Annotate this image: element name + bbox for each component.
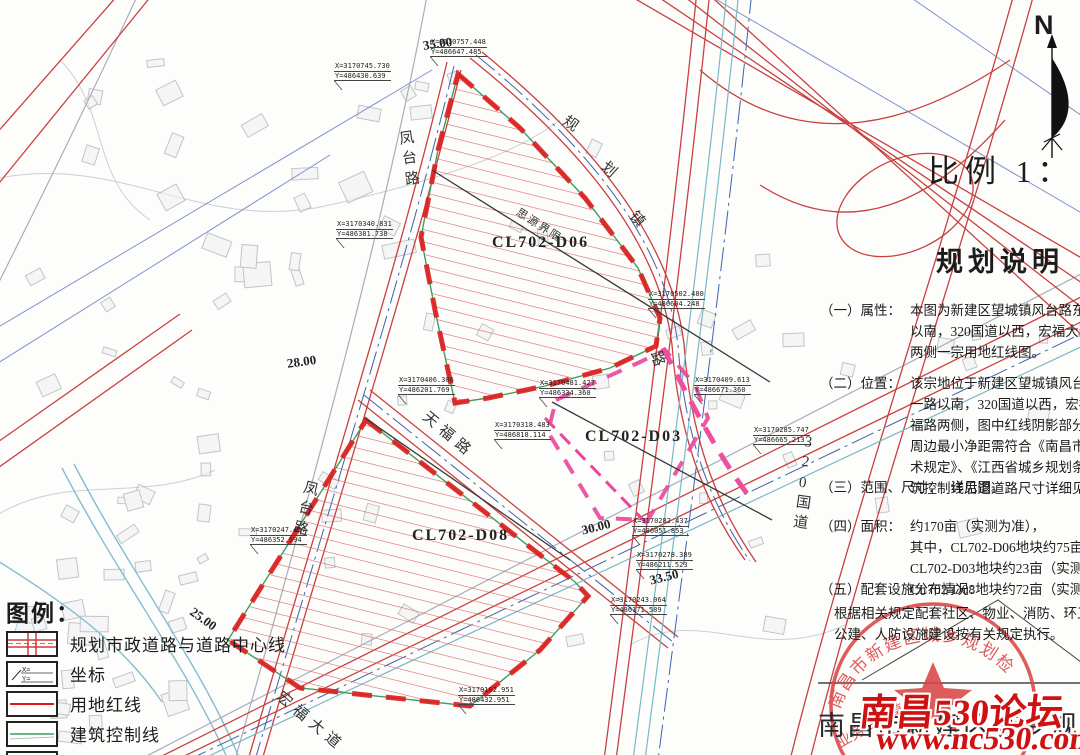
note-section-label: （一）属性： [820, 300, 901, 363]
green-line-symbol-icon [6, 721, 58, 747]
coordinate-label: X=3170745.730Y=486430.639 [334, 62, 391, 90]
legend-item: X=Y=坐标 [6, 662, 286, 685]
note-line: 公建、人防设施建设按有关规定执行。 [834, 624, 1080, 645]
scale-text: 比例 1： [928, 146, 1074, 191]
coordinate-label: X=3170243.064Y=486171.589 [610, 596, 667, 624]
note-line: 两侧一宗用地红线图。 [910, 342, 1080, 363]
note-section-label: （五）配套设施分布情况： [820, 579, 1080, 600]
coordinate-symbol-icon: X=Y= [6, 661, 58, 687]
coordinate-label: X=3170318.483Y=486818.114 [494, 421, 551, 449]
elevation-symbol-icon: XX.XX [6, 751, 58, 755]
coordinate-label: X=3170278.389Y=486211.523 [636, 551, 693, 579]
legend-item-label: 规划市政道路与道路中心线 [70, 631, 286, 656]
scale-label: 比例 [928, 154, 1002, 189]
coordinate-label: X=3170757.448Y=486647.485 [430, 38, 487, 66]
coordinate-label: X=3170282.437Y=486051.853 [632, 517, 689, 545]
legend-item: 建筑控制线 [6, 722, 286, 745]
parcel-label-cl702-d08: CL702-D08 [412, 527, 509, 545]
scale-value: 1： [1016, 154, 1075, 189]
coordinate-label: X=3170340.831Y=486381.738 [336, 220, 393, 248]
legend-item: 用地红线 [6, 692, 286, 715]
note-line: 本图为新建区望城镇风台路东侧， [910, 300, 1080, 321]
planning-map-sheet: 南昌市新建区城乡规划检 业务专用章 N 比例 1： 规划说明 （一）属性：本图为… [0, 0, 1080, 755]
notes-heading: 规划说明 [936, 240, 1064, 279]
parcel-label-cl702-d06: CL702-D06 [492, 234, 589, 252]
note-line: 根据相关规定配套社区、物业、消防、环卫、 [834, 603, 1080, 624]
note-line: 约170亩（实测为准）， [910, 516, 1080, 537]
note-section-label: （三）范围、尺寸： [820, 477, 942, 498]
note-line: 详见图。 [951, 477, 1005, 498]
coordinate-label: X=3170481.427Y=486334.360 [539, 379, 596, 407]
coordinate-label: X=3170409.613Y=486671.360 [694, 376, 751, 404]
note-line: 以南，320国道以西，宏福大道以北 [910, 321, 1080, 342]
legend-item-label: 坐标 [70, 661, 106, 686]
red-line-symbol-icon [6, 691, 58, 717]
note-line: 周边最小净距需符合《南昌市城市 [910, 436, 1080, 457]
road-symbol-icon [6, 631, 58, 657]
coordinate-label: X=3170247.457Y=486352.594 [250, 526, 307, 554]
coordinate-label: X=3170502.480Y=486604.248 [648, 290, 705, 318]
note-line: 一路以南，320国道以西，宏福大道 [910, 394, 1080, 415]
legend-item: 规划市政道路与道路中心线 [6, 632, 286, 655]
legend-title: 图例： [6, 594, 286, 628]
legend-item-label: 建筑控制线 [70, 721, 160, 746]
legend: 图例： 规划市政道路与道路中心线X=Y=坐标用地红线建筑控制线XX.XX道路设计… [6, 594, 286, 755]
coordinate-label: X=3170406.306Y=486201.769 [398, 376, 455, 404]
north-label: N [1034, 10, 1054, 41]
north-arrow-icon [1042, 34, 1069, 158]
note-line: 术规定》、《江西省城乡规划条例 [910, 457, 1080, 478]
note-section: （一）属性：本图为新建区望城镇风台路东侧，以南，320国道以西，宏福大道以北两侧… [820, 300, 1080, 363]
legend-item-label: 用地红线 [70, 691, 142, 716]
coordinate-label: X=3170285.747Y=486665.213 [753, 426, 810, 454]
parcel-label-cl702-d03: CL702-D03 [585, 428, 682, 446]
note-section: （五）配套设施分布情况：根据相关规定配套社区、物业、消防、环卫、公建、人防设施建… [820, 579, 1080, 645]
watermark-url: www.nc530.com [873, 720, 1080, 755]
note-line: 该宗地位于新建区望城镇风台路东 [910, 373, 1080, 394]
coordinate-label: X=3170102.951Y=486432.951 [458, 686, 515, 714]
note-line: 福路两侧，图中红线阴影部分， [910, 415, 1080, 436]
legend-item-label: 道路设计标高 [70, 751, 178, 755]
note-line: CL702-D03地块约23亩（实测 [910, 558, 1080, 579]
note-line: 其中，CL702-D06地块约75亩（实测 [910, 537, 1080, 558]
note-section: （三）范围、尺寸：详见图。 [820, 477, 1080, 498]
